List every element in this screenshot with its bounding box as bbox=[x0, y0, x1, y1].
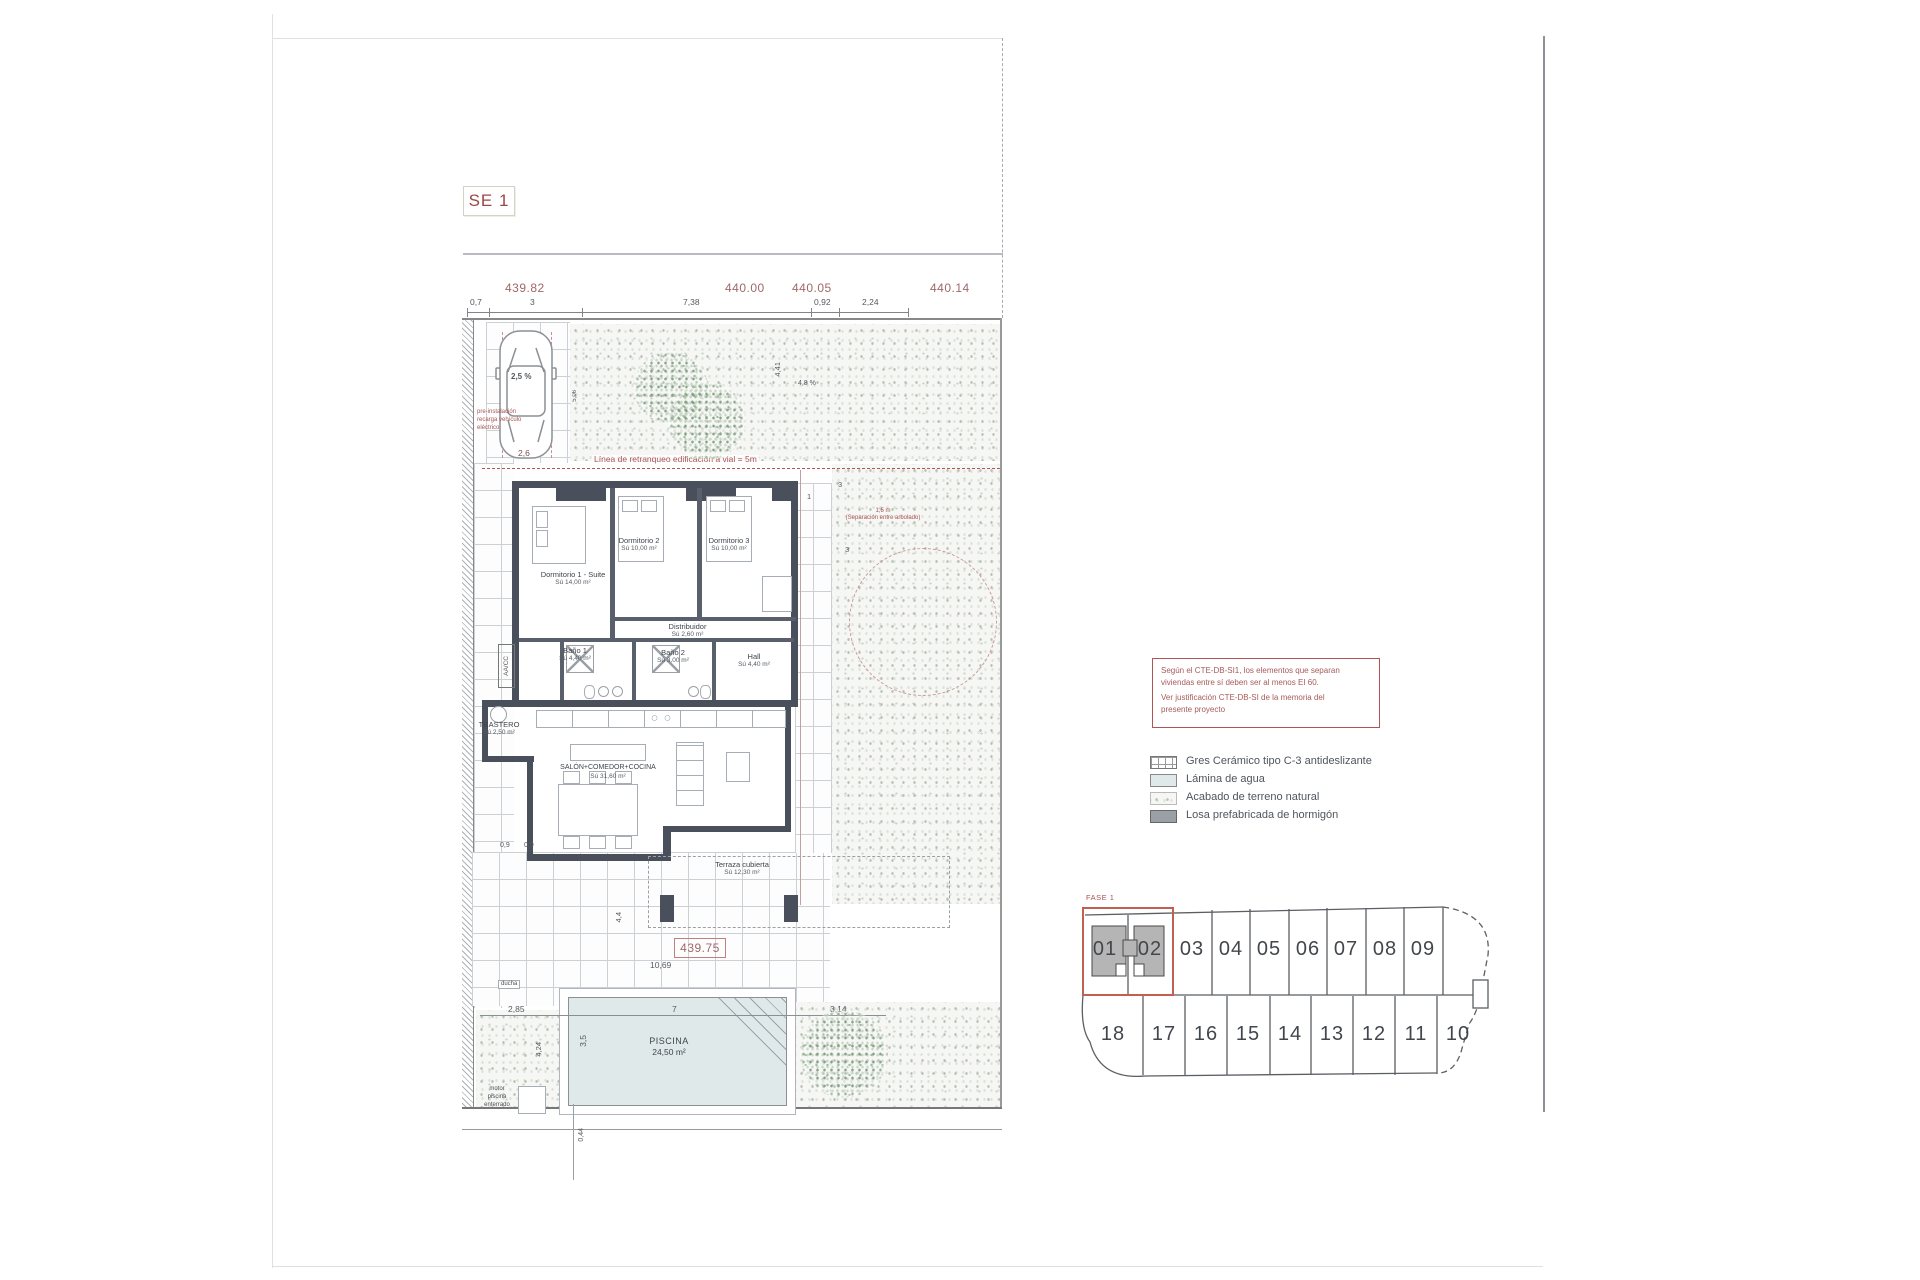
frame-bottom bbox=[272, 1266, 1543, 1267]
pool-motor-box bbox=[518, 1086, 546, 1114]
room-name: Baño 2 bbox=[638, 648, 708, 657]
room-area: Sú 2,60 m² bbox=[640, 631, 735, 639]
armchair bbox=[726, 752, 750, 782]
chair bbox=[589, 836, 606, 849]
room-name: Dormitorio 2 bbox=[594, 536, 684, 545]
pillow bbox=[710, 500, 726, 512]
plot-13: 13 bbox=[1312, 1023, 1352, 1046]
pillow bbox=[536, 530, 548, 547]
note-line4: presente proyecto bbox=[1161, 704, 1371, 716]
motor-line2: piscina bbox=[488, 1094, 507, 1100]
room-area: Sú 14,00 m² bbox=[523, 579, 623, 587]
dim-0-9b: 0,9 bbox=[524, 842, 534, 849]
wardrobe bbox=[762, 576, 792, 612]
room-name: Dormitorio 1 - Suite bbox=[523, 570, 623, 579]
sofa bbox=[676, 742, 704, 806]
parcel-top bbox=[462, 318, 1002, 320]
plot-02: 02 bbox=[1130, 938, 1170, 961]
toilet bbox=[700, 685, 711, 699]
motor-line3: enterrado bbox=[484, 1102, 510, 1108]
ev-line3: eléctrico bbox=[477, 425, 499, 431]
legend-label: Acabado de terreno natural bbox=[1186, 791, 1319, 803]
elevation-440-05: 440.05 bbox=[792, 281, 832, 295]
plot-14: 14 bbox=[1270, 1023, 1310, 1046]
tile-swatch bbox=[1150, 756, 1177, 769]
dim-tick bbox=[489, 308, 490, 317]
separation-note: 1,5 m (Separación entre arbolado) bbox=[838, 508, 928, 522]
elevation-440-14: 440.14 bbox=[930, 281, 970, 295]
room-name: Distribuidor bbox=[640, 622, 735, 631]
terrain-swatch bbox=[1150, 792, 1177, 805]
parcel-right bbox=[1000, 318, 1002, 1108]
wall bbox=[697, 488, 702, 620]
ev-line2: recarga vehículo bbox=[477, 417, 521, 423]
ev-charger-note: pre-instalación recarga vehículo eléctri… bbox=[477, 409, 521, 432]
level-439-75-box: 439.75 bbox=[674, 938, 726, 958]
sink bbox=[688, 686, 699, 697]
note-line3: Ver justificación CTE-DB-SI de la memori… bbox=[1161, 692, 1371, 704]
room-area: Sú 3,00 m² bbox=[638, 657, 708, 665]
pool-axis-line bbox=[573, 1104, 574, 1180]
toilet bbox=[584, 685, 595, 699]
wall bbox=[712, 642, 716, 702]
car-width: 2,6 bbox=[518, 448, 530, 458]
dim-tick bbox=[839, 308, 840, 317]
room-area: Sú 10,00 m² bbox=[594, 545, 684, 553]
wall bbox=[791, 481, 798, 707]
chair bbox=[563, 836, 580, 849]
plots-diagram bbox=[1060, 880, 1520, 1100]
pool-area: 24,50 m² bbox=[609, 1047, 729, 1058]
frame-left bbox=[272, 14, 273, 1268]
plot-17: 17 bbox=[1144, 1023, 1184, 1046]
frame-top bbox=[272, 38, 1002, 39]
level-439-75: 439.75 bbox=[680, 941, 720, 955]
separation-text: (Separación entre arbolado) bbox=[846, 515, 921, 521]
section-label-box: SE 1 bbox=[463, 186, 515, 216]
dim-0-44: 0,44 bbox=[578, 1128, 585, 1142]
section-label: SE 1 bbox=[469, 191, 510, 211]
plot-11: 11 bbox=[1396, 1023, 1436, 1046]
aacc-label: AA/CC bbox=[503, 656, 510, 676]
room-area: Sú 4,40 m² bbox=[722, 661, 786, 669]
setback-label: Línea de retranqueo edificación a vial =… bbox=[592, 455, 759, 465]
concrete-swatch bbox=[1150, 810, 1177, 823]
room-label-bano1: Baño 1 Sú 4,40 m² bbox=[540, 646, 610, 664]
pillow bbox=[622, 500, 638, 512]
dim-3-top: 3 bbox=[838, 480, 842, 489]
ev-line1: pre-instalación bbox=[477, 409, 516, 415]
room-area: Sú 2,50 m² bbox=[468, 729, 530, 737]
room-name: Baño 1 bbox=[540, 646, 610, 655]
note-line2: viviendas entre sí deben ser al menos EI… bbox=[1161, 677, 1371, 689]
plot-15: 15 bbox=[1228, 1023, 1268, 1046]
plot-01: 01 bbox=[1085, 938, 1125, 961]
separation-dim: 1,5 m bbox=[875, 508, 890, 514]
pool-stairs bbox=[714, 998, 786, 1070]
pillar bbox=[660, 895, 674, 922]
pool: PISCINA 24,50 m² bbox=[568, 997, 787, 1106]
tree-icon bbox=[668, 382, 746, 460]
plot-08: 08 bbox=[1365, 938, 1405, 961]
dim-4-41: 4,41 bbox=[773, 362, 782, 377]
street-line bbox=[463, 253, 1003, 255]
dim-tick bbox=[467, 308, 468, 317]
room-label-dorm3: Dormitorio 3 Sú 10,00 m² bbox=[684, 536, 774, 554]
pillow bbox=[729, 500, 745, 512]
wall bbox=[632, 642, 636, 702]
plot-18: 18 bbox=[1093, 1023, 1133, 1046]
plot-04: 04 bbox=[1211, 938, 1251, 961]
room-name: Hall bbox=[722, 652, 786, 661]
dim-4-4: 4,4 bbox=[614, 912, 623, 922]
dim-tick bbox=[908, 308, 909, 317]
terrace-slab-dashed bbox=[648, 856, 950, 928]
plot-05: 05 bbox=[1249, 938, 1289, 961]
dim-3-mid: 3 bbox=[845, 545, 849, 554]
plot-12: 12 bbox=[1354, 1023, 1394, 1046]
hob bbox=[648, 713, 674, 723]
floor-plan-sheet: SE 1 439.82 440.00 440.05 440.14 0,7 3 7… bbox=[0, 0, 1920, 1280]
pool-label: PISCINA 24,50 m² bbox=[609, 1036, 729, 1058]
dimension-line bbox=[467, 312, 908, 313]
wall bbox=[663, 826, 790, 832]
dim-0-7: 0,7 bbox=[470, 297, 482, 307]
wall bbox=[512, 481, 798, 488]
room-area: Sú 10,00 m² bbox=[684, 545, 774, 553]
legend-label: Lámina de agua bbox=[1186, 773, 1265, 785]
motor-line1: motor bbox=[489, 1086, 504, 1092]
wall bbox=[610, 617, 796, 621]
water-swatch bbox=[1150, 774, 1177, 787]
dining-table bbox=[558, 784, 638, 836]
room-label-salon: SALÓN+COMEDOR+COCINA Sú 31,60 m² bbox=[538, 764, 678, 781]
chair bbox=[615, 836, 632, 849]
pillow bbox=[641, 500, 657, 512]
room-name: SALÓN+COMEDOR+COCINA bbox=[538, 764, 678, 773]
car-icon bbox=[494, 328, 558, 462]
plot-09: 09 bbox=[1403, 938, 1443, 961]
dim-3: 3 bbox=[530, 297, 535, 307]
pool-motor-label: motor piscina enterrado bbox=[478, 1086, 516, 1109]
plot-03: 03 bbox=[1172, 938, 1212, 961]
note-line1: Según el CTE-DB-SI1, los elementos que s… bbox=[1161, 665, 1371, 677]
side-dim-line bbox=[800, 470, 801, 905]
room-name: Dormitorio 3 bbox=[684, 536, 774, 545]
sink bbox=[612, 686, 623, 697]
dim-7: 7 bbox=[672, 1004, 677, 1014]
room-name: TRASTERO bbox=[468, 720, 530, 729]
dim-0-92: 0,92 bbox=[814, 297, 831, 307]
cte-note-box: Según el CTE-DB-SI1, los elementos que s… bbox=[1152, 658, 1380, 728]
room-label-trastero: TRASTERO Sú 2,50 m² bbox=[468, 720, 530, 738]
room-label-distribuidor: Distribuidor Sú 2,60 m² bbox=[640, 622, 735, 640]
room-area: Sú 4,40 m² bbox=[540, 655, 610, 663]
wall-pier bbox=[556, 481, 606, 501]
plot-06: 06 bbox=[1288, 938, 1328, 961]
dim-10-69: 10,69 bbox=[650, 960, 671, 970]
plot-16: 16 bbox=[1186, 1023, 1226, 1046]
kitchen-island bbox=[570, 744, 646, 761]
tree-icon bbox=[800, 1010, 888, 1098]
legend-label: Losa prefabricada de hormigón bbox=[1186, 809, 1338, 821]
room-label-dorm2: Dormitorio 2 Sú 10,00 m² bbox=[594, 536, 684, 554]
pillow bbox=[536, 511, 548, 528]
plot-07: 07 bbox=[1326, 938, 1366, 961]
ducha-label: ducha bbox=[498, 980, 520, 989]
room-area: Sú 31,60 m² bbox=[538, 773, 678, 781]
car-slope: 2,5 % bbox=[511, 372, 531, 381]
dim-2-85: 2,85 bbox=[508, 1004, 525, 1014]
plot-10: 10 bbox=[1438, 1023, 1478, 1046]
sink bbox=[598, 686, 609, 697]
dim-tick bbox=[811, 308, 812, 317]
pillar bbox=[784, 895, 798, 922]
slope-right: 4,8 % bbox=[798, 380, 816, 387]
outer-fence bbox=[462, 1129, 1002, 1130]
car-length: 5,06 bbox=[572, 390, 578, 402]
elevation-440-00: 440.00 bbox=[725, 281, 765, 295]
tree-crown-dashed bbox=[849, 548, 997, 696]
dim-0-9a: 0,9 bbox=[500, 842, 510, 849]
dim-2-24: 2,24 bbox=[862, 297, 879, 307]
setback-line bbox=[482, 468, 1000, 469]
dim-1: 1 bbox=[807, 492, 811, 501]
elevation-439-82: 439.82 bbox=[505, 281, 545, 295]
sheet-divider bbox=[1543, 36, 1545, 1112]
room-label-bano2: Baño 2 Sú 3,00 m² bbox=[638, 648, 708, 666]
room-label-hall: Hall Sú 4,40 m² bbox=[722, 652, 786, 670]
legend-label: Gres Cerámico tipo C-3 antideslizante bbox=[1186, 755, 1372, 767]
plot-limit-dashed bbox=[1002, 38, 1003, 318]
dim-7-38: 7,38 bbox=[683, 297, 700, 307]
pool-name: PISCINA bbox=[609, 1036, 729, 1047]
dim-3-5: 3,5 bbox=[578, 1035, 588, 1047]
dim-4-24: 4,24 bbox=[534, 1042, 543, 1057]
aacc-unit: AA/CC bbox=[498, 644, 515, 688]
wall bbox=[482, 700, 798, 707]
room-label-dorm1: Dormitorio 1 - Suite Sú 14,00 m² bbox=[523, 570, 623, 588]
dim-tick bbox=[582, 308, 583, 317]
